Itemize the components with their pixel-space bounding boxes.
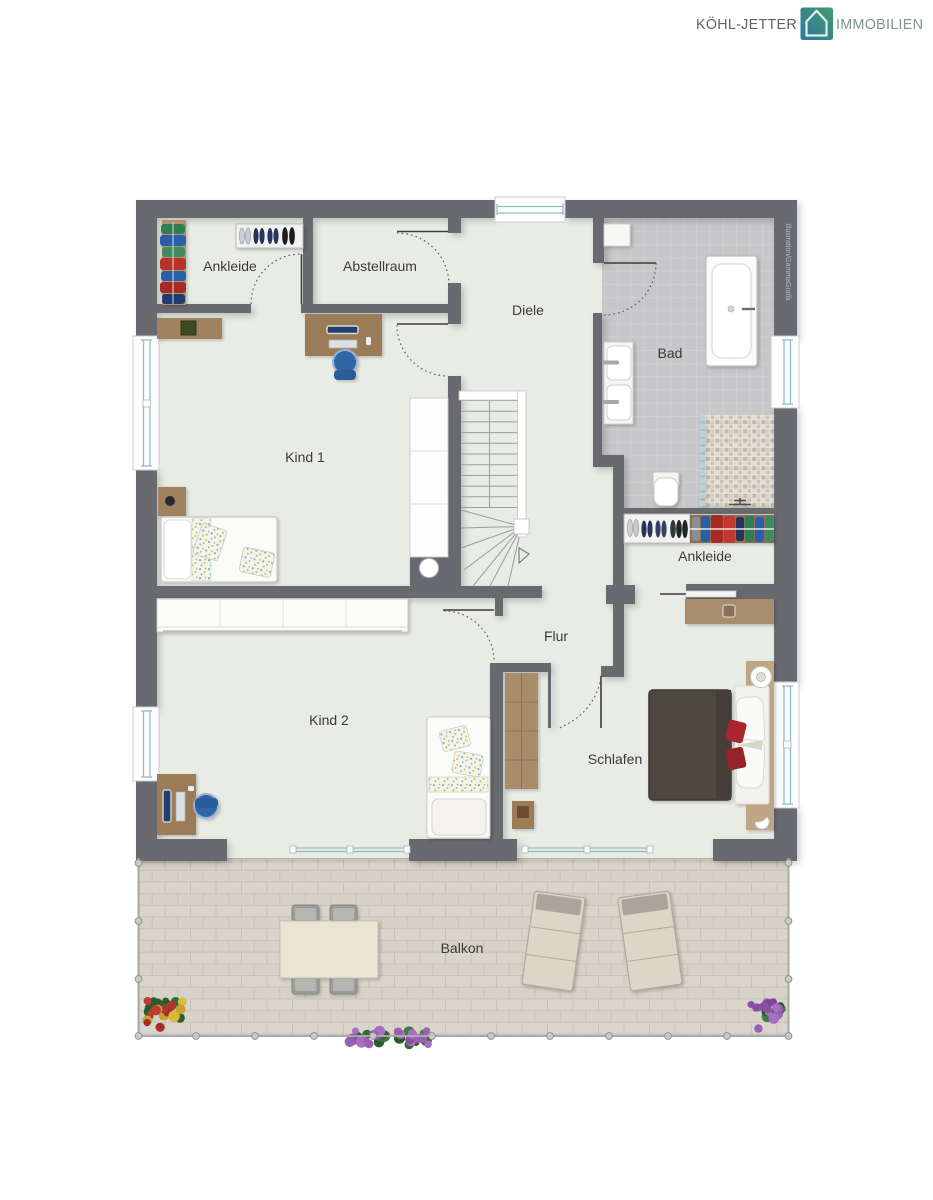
svg-text:Abstellraum: Abstellraum	[343, 258, 417, 274]
svg-text:Ankleide: Ankleide	[203, 258, 257, 274]
svg-text:Ankleide: Ankleide	[678, 548, 732, 564]
svg-text:IMMOBILIEN: IMMOBILIEN	[836, 17, 923, 33]
svg-text:KÖHL-JETTER: KÖHL-JETTER	[696, 15, 797, 33]
svg-text:Schlafen: Schlafen	[588, 751, 642, 767]
svg-text:Bad: Bad	[658, 345, 683, 361]
svg-text:Illustration/GammaGrafik: Illustration/GammaGrafik	[784, 223, 791, 301]
svg-text:Flur: Flur	[544, 628, 568, 644]
svg-text:Balkon: Balkon	[441, 940, 484, 956]
svg-text:Kind 2: Kind 2	[309, 712, 349, 728]
svg-text:Diele: Diele	[512, 302, 544, 318]
svg-text:Kind 1: Kind 1	[285, 449, 325, 465]
